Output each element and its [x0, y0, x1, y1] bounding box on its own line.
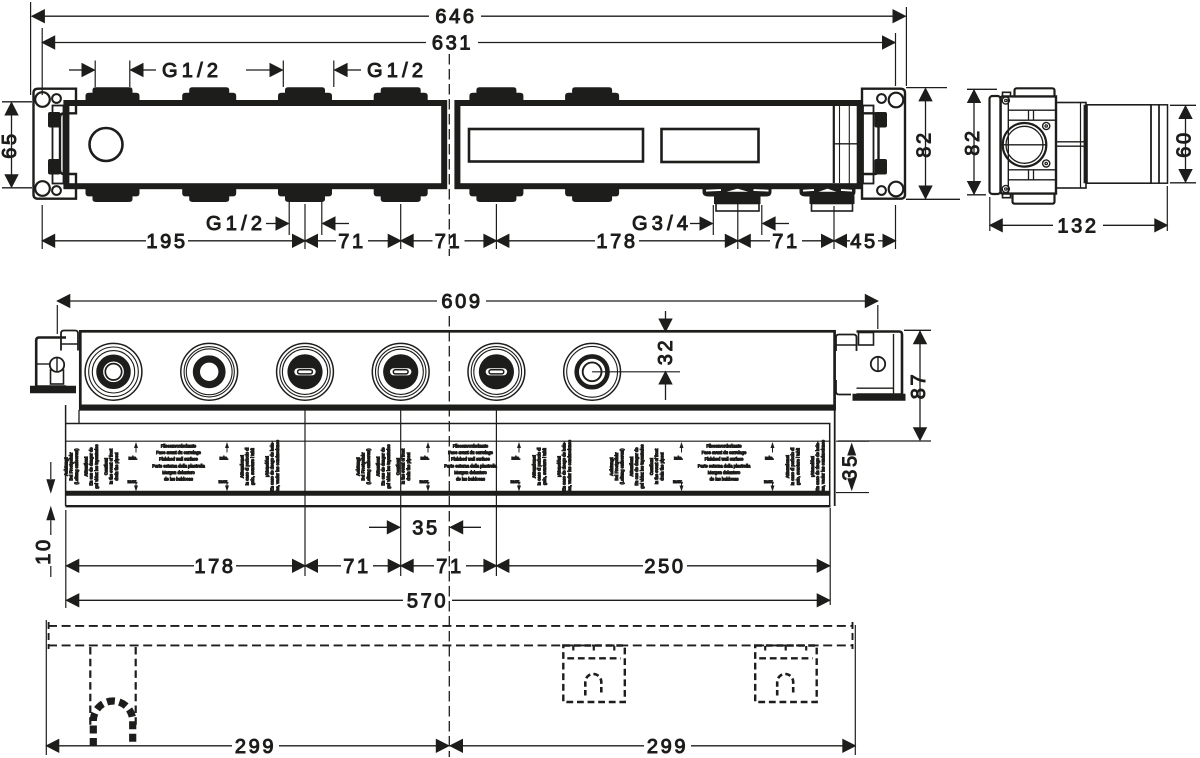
- svg-text:35: 35: [840, 453, 862, 480]
- svg-text:82: 82: [962, 128, 984, 155]
- svg-text:250: 250: [644, 556, 685, 578]
- svg-text:71: 71: [338, 231, 365, 253]
- svg-text:631: 631: [432, 32, 473, 54]
- svg-text:87: 87: [908, 372, 930, 399]
- svg-text:646: 646: [435, 6, 476, 28]
- svg-text:570: 570: [407, 590, 448, 612]
- svg-text:178: 178: [194, 556, 235, 578]
- svg-text:60: 60: [1174, 130, 1196, 157]
- svg-text:82: 82: [914, 130, 936, 157]
- svg-text:195: 195: [146, 231, 187, 253]
- svg-text:71: 71: [436, 556, 463, 578]
- svg-text:299: 299: [647, 736, 688, 758]
- svg-text:32: 32: [655, 338, 677, 365]
- svg-text:35: 35: [412, 517, 439, 539]
- svg-text:G1/2: G1/2: [162, 60, 222, 82]
- svg-text:178: 178: [596, 231, 637, 253]
- svg-text:299: 299: [235, 736, 276, 758]
- svg-text:G1/2: G1/2: [367, 60, 427, 82]
- svg-text:10: 10: [33, 537, 55, 564]
- svg-text:71: 71: [772, 231, 799, 253]
- svg-text:71: 71: [343, 556, 370, 578]
- svg-text:609: 609: [441, 291, 482, 313]
- svg-text:G3/4: G3/4: [632, 213, 692, 235]
- svg-text:65: 65: [0, 131, 21, 158]
- svg-text:71: 71: [435, 231, 462, 253]
- svg-text:132: 132: [1057, 215, 1098, 237]
- svg-text:G1/2: G1/2: [206, 213, 266, 235]
- svg-text:45: 45: [850, 231, 877, 253]
